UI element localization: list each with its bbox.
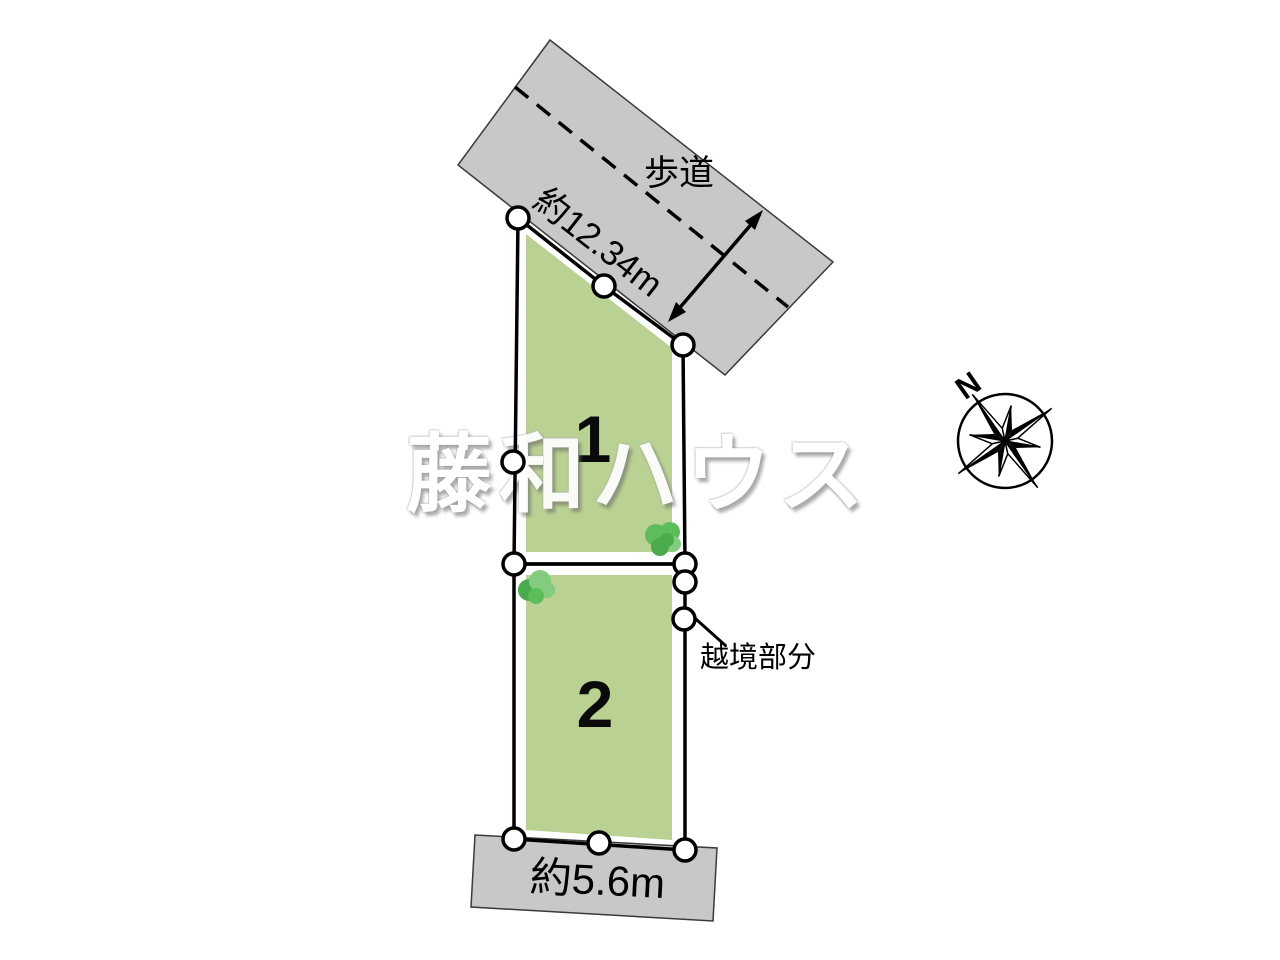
boundary-marker	[674, 571, 696, 593]
bottom-road-dimension-label: 約5.6m	[529, 856, 666, 905]
sidewalk-label: 歩道	[644, 156, 714, 191]
compass-rose-icon	[926, 362, 1085, 521]
boundary-marker	[672, 334, 694, 356]
boundary-marker	[503, 828, 525, 850]
boundary-marker	[588, 832, 610, 854]
encroachment-point-marker	[673, 608, 695, 630]
frontage-arrow	[668, 210, 763, 322]
boundary-markers	[502, 207, 696, 861]
boundary-marker	[502, 451, 524, 473]
encroachment-label: 越境部分	[700, 644, 816, 673]
site-plan-diagram: 1 2 藤和ハウス	[0, 0, 1280, 960]
boundary-marker	[503, 553, 525, 575]
line-overlay-layer	[0, 0, 1280, 960]
parcel-2-outline	[514, 564, 685, 850]
boundary-marker	[674, 839, 696, 861]
